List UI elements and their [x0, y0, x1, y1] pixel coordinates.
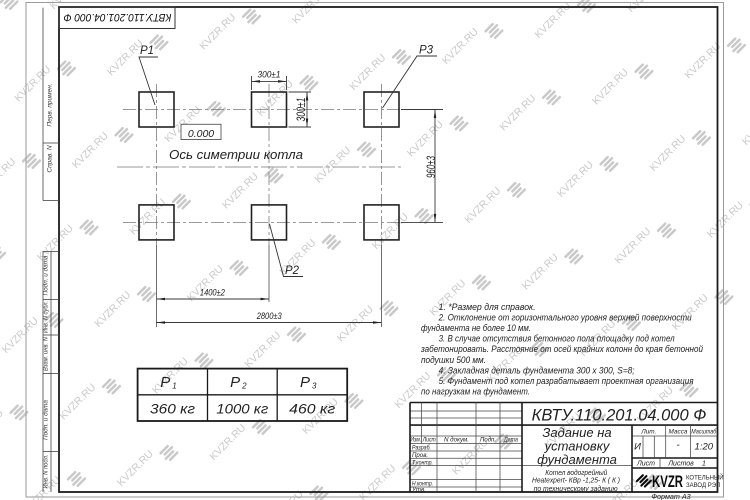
svg-text:Пров.: Пров. [412, 452, 428, 459]
svg-text:Инв. N дубл.: Инв. N дубл. [42, 301, 50, 333]
svg-text:0.000: 0.000 [188, 128, 214, 140]
svg-text:P2: P2 [230, 374, 247, 391]
svg-text:KVZR.RU: KVZR.RU [242, 329, 283, 370]
svg-text:фундамента: фундамента [537, 452, 617, 467]
svg-text:Т.контр.: Т.контр. [412, 460, 433, 467]
svg-text:1. *Размер для справок.: 1. *Размер для справок. [439, 302, 536, 312]
svg-text:KVZR.RU: KVZR.RU [197, 11, 238, 52]
svg-text:KVZR.RU: KVZR.RU [357, 462, 398, 500]
svg-text:KVZR.RU: KVZR.RU [0, 407, 6, 448]
svg-text:KVZR.RU: KVZR.RU [185, 263, 226, 304]
svg-text:KVZR.RU: KVZR.RU [312, 144, 353, 185]
svg-text:Дата: Дата [503, 437, 518, 444]
svg-text:N докум.: N докум. [444, 437, 469, 444]
svg-text:Лит.: Лит. [640, 429, 656, 436]
svg-text:KVZR.RU: KVZR.RU [612, 225, 653, 266]
svg-text:KVZR.RU: KVZR.RU [335, 303, 376, 344]
svg-text:Формат А3: Формат А3 [651, 492, 690, 500]
svg-text:Разраб.: Разраб. [412, 445, 431, 452]
svg-text:KVZR.RU: KVZR.RU [70, 130, 111, 171]
svg-text:5. Фундамент под котел раз: 5. Фундамент под котел разрабатывает про… [439, 376, 694, 386]
svg-text:360 кг: 360 кг [150, 402, 195, 417]
svg-text:460 кг: 460 кг [289, 402, 335, 417]
svg-text:KVZR.RU: KVZR.RU [405, 118, 446, 159]
svg-text:Масса: Масса [669, 429, 688, 436]
svg-text:Масштаб: Масштаб [691, 428, 716, 436]
svg-text:KVZR.RU: KVZR.RU [347, 52, 388, 93]
svg-text:KVZR.RU: KVZR.RU [440, 26, 481, 67]
svg-text:KVZR.RU: KVZR.RU [255, 78, 296, 119]
svg-text:И: И [634, 442, 641, 453]
svg-text:P2: P2 [285, 263, 299, 277]
svg-text:KVZR.RU: KVZR.RU [92, 289, 133, 330]
svg-text:Подп. и дата: Подп. и дата [42, 400, 50, 440]
svg-text:KVZR.RU: KVZR.RU [0, 315, 41, 356]
svg-text:2. Отклонение от горизонтал: 2. Отклонение от горизонтального уровня … [438, 312, 692, 322]
svg-text:300±1: 300±1 [258, 70, 281, 80]
svg-text:3. В случае отсутствия бет: 3. В случае отсутствия бетонного пола пл… [439, 334, 675, 344]
svg-text:забетонировать. Расстояние о: забетонировать. Расстояние от осей крайн… [420, 344, 703, 354]
svg-text:KVZR.RU: KVZR.RU [555, 159, 596, 200]
svg-text:-: - [676, 440, 680, 451]
svg-text:подушки 500 мм.: подушки 500 мм. [421, 355, 486, 365]
svg-text:KVZR.RU: KVZR.RU [740, 107, 750, 148]
svg-text:1: 1 [702, 461, 706, 468]
svg-text:KVZR.RU: KVZR.RU [265, 488, 306, 500]
svg-text:по нагрузкам на фундамент.: по нагрузкам на фундамент. [421, 387, 530, 397]
svg-text:Изм.: Изм. [410, 437, 421, 444]
svg-text:300±1: 300±1 [296, 98, 308, 122]
svg-text:Лист: Лист [636, 461, 655, 468]
svg-text:КВТУ.110.201.04.000 Ф: КВТУ.110.201.04.000 Ф [532, 407, 707, 425]
svg-text:KVZR.RU: KVZR.RU [115, 448, 156, 489]
svg-text:Утв.: Утв. [411, 487, 426, 494]
svg-text:Справ. N: Справ. N [47, 145, 54, 173]
svg-text:Ось симетрии котла: Ось симетрии котла [169, 148, 303, 162]
svg-text:2800±3: 2800±3 [256, 311, 282, 321]
svg-text:Подп. и дата: Подп. и дата [42, 255, 50, 295]
svg-text:4. Закладная деталь фундаме: 4. Закладная деталь фундамента 300 x 300… [439, 365, 635, 375]
svg-text:KVZR.RU: KVZR.RU [520, 251, 561, 292]
svg-text:KVZR.RU: KVZR.RU [57, 381, 98, 422]
svg-text:КОТЕЛЬНЫЙ: КОТЕЛЬНЫЙ [686, 474, 724, 482]
svg-text:фундамента не более 10 мм.: фундамента не более 10 мм. [421, 323, 531, 333]
svg-text:KVZR.RU: KVZR.RU [290, 0, 331, 26]
svg-text:KVZR.RU: KVZR.RU [35, 222, 76, 263]
svg-text:KVZR.RU: KVZR.RU [462, 185, 503, 226]
svg-text:KVZR.RU: KVZR.RU [647, 133, 688, 174]
svg-text:КВТУ.110.201.04.000 Ф: КВТУ.110.201.04.000 Ф [63, 11, 171, 23]
svg-text:P3: P3 [419, 43, 433, 57]
svg-text:1000 кг: 1000 кг [216, 402, 268, 417]
svg-text:KVZR.RU: KVZR.RU [590, 66, 631, 107]
svg-text:Подп.: Подп. [480, 437, 496, 444]
svg-text:по техническому заданию: по техническому заданию [534, 484, 619, 493]
svg-text:P1: P1 [140, 43, 154, 57]
svg-text:Листов: Листов [667, 461, 694, 468]
svg-text:ЗАВОД РЭП: ЗАВОД РЭП [686, 483, 720, 489]
svg-text:1400±2: 1400±2 [200, 287, 226, 297]
svg-text:KVZR.RU: KVZR.RU [370, 211, 411, 252]
svg-text:KVZR.RU: KVZR.RU [497, 92, 538, 133]
svg-text:KVZR.RU: KVZR.RU [207, 422, 248, 463]
svg-text:1:20: 1:20 [695, 442, 714, 453]
svg-text:P3: P3 [300, 374, 317, 391]
svg-text:Перв. примен.: Перв. примен. [47, 83, 54, 126]
svg-text:KVZR.RU: KVZR.RU [47, 0, 88, 12]
svg-text:960±3: 960±3 [424, 156, 438, 178]
svg-text:KVZR: KVZR [652, 472, 683, 491]
svg-text:KVZR.RU: KVZR.RU [0, 156, 18, 197]
svg-text:KVZR.RU: KVZR.RU [705, 199, 746, 240]
svg-text:KVZR.RU: KVZR.RU [127, 196, 168, 237]
svg-text:Взам. инв. N: Взам. инв. N [43, 337, 50, 371]
svg-text:Инв. N подл.: Инв. N подл. [42, 454, 50, 488]
svg-text:Лист: Лист [422, 437, 436, 444]
svg-text:KVZR.RU: KVZR.RU [150, 355, 191, 396]
